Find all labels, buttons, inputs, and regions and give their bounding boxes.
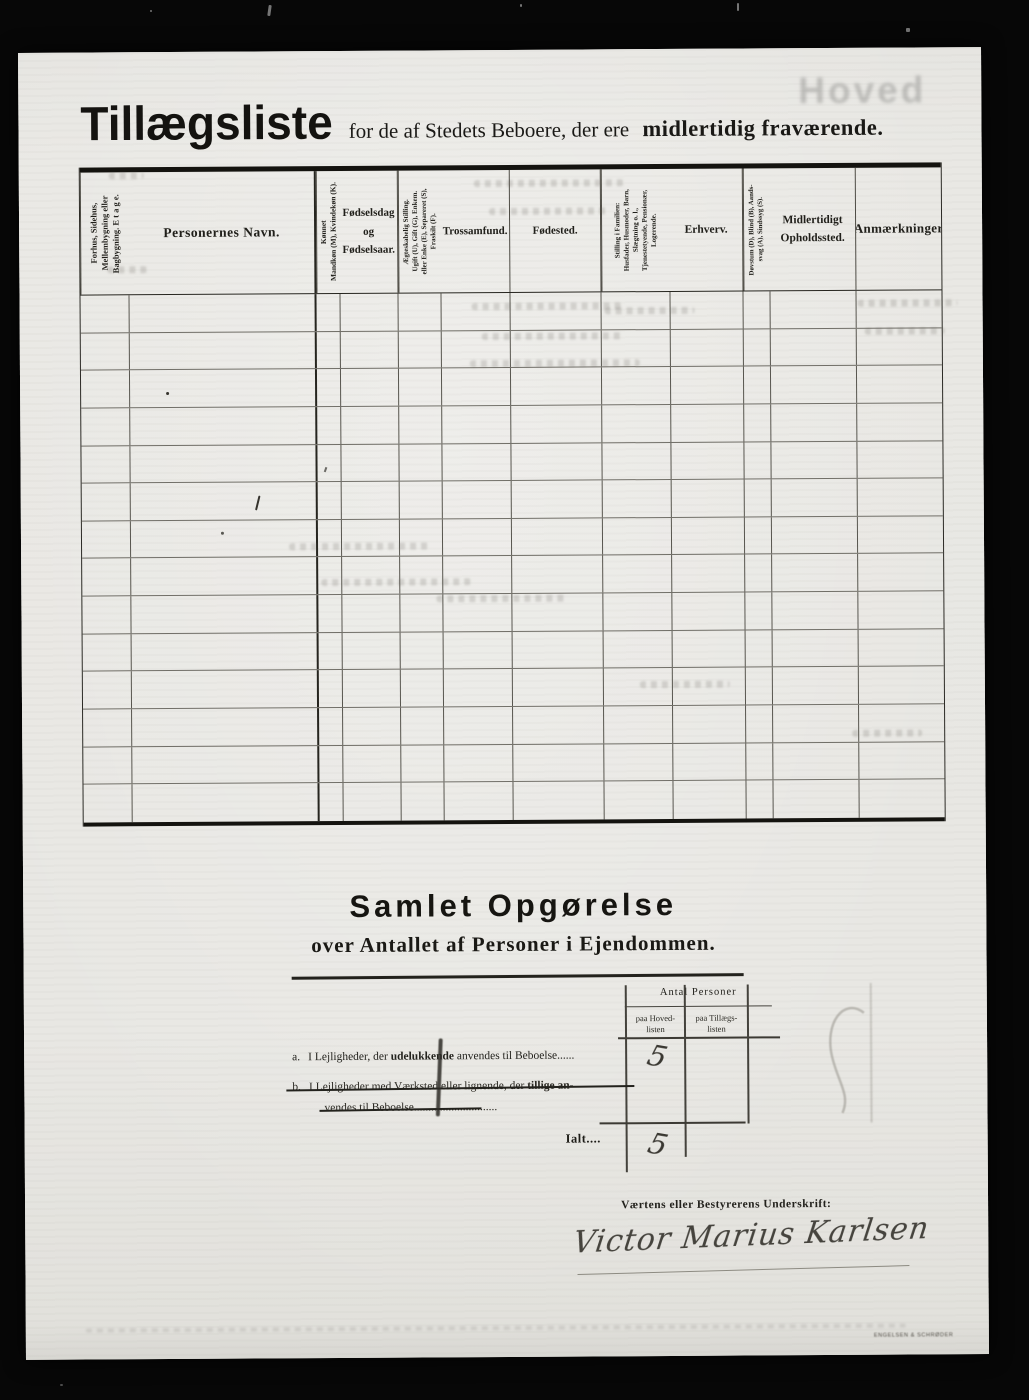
table-cell (442, 331, 511, 368)
table-cell (401, 745, 444, 782)
table-cell (603, 593, 672, 630)
table-cell (399, 369, 442, 406)
table-cell (400, 519, 443, 556)
table-cell (317, 407, 341, 444)
table-cell (746, 668, 773, 705)
table-cell (744, 367, 771, 404)
table-cell (672, 480, 745, 517)
table-cell (773, 629, 859, 666)
table-cell (400, 557, 443, 594)
mini-table-line (600, 1122, 746, 1124)
form-subtitle-regular: for de af Stedets Beboere, der ere (349, 117, 630, 143)
table-cell (858, 591, 943, 628)
table-cell (859, 704, 944, 741)
column-header-temporary-residence: Midlertidigt Opholdssted. (770, 168, 857, 291)
table-cell (81, 295, 130, 332)
table-cell (318, 520, 342, 557)
table-cell (744, 404, 771, 441)
table-cell (343, 708, 401, 745)
table-cell (859, 667, 944, 704)
dust-speck (906, 28, 910, 32)
table-cell (343, 745, 401, 782)
table-cell (130, 407, 317, 445)
line-a-leaders: ...... (557, 1050, 574, 1062)
bleed-through-smudge (86, 1324, 906, 1333)
table-cell (603, 555, 672, 592)
table-row (81, 403, 942, 446)
table-cell (83, 672, 132, 709)
table-cell (673, 781, 746, 819)
table-cell (744, 329, 771, 366)
table-cell (857, 441, 942, 478)
table-cell (444, 744, 513, 781)
table-cell (319, 633, 343, 670)
table-cell (131, 482, 318, 520)
table-cell (771, 366, 857, 403)
table-cell (856, 290, 941, 327)
table-cell (129, 294, 316, 332)
column-header-remarks: Anmærkninger (856, 167, 942, 290)
table-cell (317, 369, 341, 406)
table-row (83, 704, 944, 747)
table-cell (444, 707, 513, 744)
table-cell (604, 631, 673, 668)
handwritten-count-ialt: 5 (644, 1126, 671, 1162)
table-cell (342, 519, 400, 556)
table-cell (773, 780, 859, 818)
column-header-birthdate: Fødselsdag og Fødselsaar. (340, 171, 399, 293)
table-row (82, 478, 943, 521)
table-cell (343, 783, 401, 821)
table-cell (81, 371, 130, 408)
table-cell (746, 630, 773, 667)
table-cell (401, 707, 444, 744)
table-cell (83, 784, 132, 822)
table-row (81, 290, 942, 333)
table-cell (398, 293, 441, 330)
table-cell (399, 444, 442, 481)
table-cell (673, 705, 746, 742)
table-cell (442, 443, 511, 480)
table-row (82, 591, 943, 634)
table-cell (671, 329, 744, 366)
table-cell (857, 403, 942, 440)
dust-speck (150, 10, 152, 12)
table-cell (745, 479, 772, 516)
table-cell (343, 670, 401, 707)
table-cell (82, 483, 131, 520)
table-cell (400, 481, 443, 518)
table-cell (604, 706, 673, 743)
table-cell (341, 369, 399, 406)
table-cell (859, 779, 944, 817)
table-cell (132, 670, 319, 708)
line-a-marker: a. (292, 1051, 300, 1063)
handwritten-count-hovedlisten: 5 (644, 1038, 671, 1074)
table-cell (745, 555, 772, 592)
table-cell (604, 668, 673, 705)
table-cell (513, 744, 604, 781)
mini-col-tillaegslisten: paa Tillægs- listen (686, 1010, 747, 1035)
form-title: Tillægsliste (80, 94, 333, 152)
table-row (83, 629, 944, 672)
table-cell (340, 294, 398, 331)
table-cell (81, 446, 130, 483)
table-cell (82, 521, 131, 558)
table-row (82, 516, 943, 559)
table-cell (772, 479, 858, 516)
table-cell (604, 781, 673, 819)
mini-table-line (618, 1036, 780, 1038)
table-cell (131, 595, 318, 633)
mini-col-hovedlisten: paa Hoved- listen (625, 1010, 686, 1035)
table-cell (603, 518, 672, 555)
table-cell (443, 556, 512, 593)
table-cell (318, 557, 342, 594)
table-cell (858, 478, 943, 515)
table-cell (771, 404, 857, 441)
table-cell (442, 368, 511, 405)
table-cell (341, 407, 399, 444)
table-cell (746, 780, 773, 818)
table-cell (512, 593, 603, 630)
table-cell (672, 593, 745, 630)
table-cell (673, 743, 746, 780)
mini-table-line (625, 1005, 772, 1007)
table-cell (671, 442, 744, 479)
table-cell (773, 667, 859, 704)
column-header-name: Personernes Navn. (129, 171, 317, 294)
signature-underline (578, 1265, 910, 1275)
bleed-through-pen-curve (802, 1003, 883, 1123)
table-cell (401, 632, 444, 669)
table-cell (771, 441, 857, 478)
table-cell (317, 332, 341, 369)
table-cell (513, 782, 604, 820)
dust-speck (520, 4, 522, 7)
summary-rule (292, 973, 744, 979)
table-row (83, 667, 944, 710)
table-cell (319, 670, 343, 707)
signature-handwriting: Victor Marius Karlsen (571, 1211, 915, 1260)
table-cell (601, 292, 670, 329)
line-b-marker: b. (292, 1081, 301, 1093)
table-cell (511, 368, 602, 405)
table-cell (341, 444, 399, 481)
table-cell (858, 554, 943, 591)
table-cell (773, 705, 859, 742)
table-cell (672, 555, 745, 592)
table-cell (513, 706, 604, 743)
table-cell (132, 783, 319, 822)
table-cell (130, 332, 317, 370)
table-cell (772, 517, 858, 554)
table-cell (673, 630, 746, 667)
table-cell (83, 747, 132, 784)
table-cell (513, 669, 604, 706)
table-cell (444, 669, 513, 706)
dust-speck (737, 3, 739, 11)
table-cell (602, 442, 671, 479)
form-subtitle: for de af Stedets Beboere, der ere midle… (349, 115, 884, 144)
table-cell (772, 592, 858, 629)
table-cell (602, 367, 671, 404)
table-row (81, 328, 942, 371)
scan-background: Hoved Tillægsliste for de af Stedets Beb… (0, 0, 1029, 1400)
table-cell (401, 670, 444, 707)
table-cell (857, 366, 942, 403)
table-cell (671, 367, 744, 404)
table-cell (745, 517, 772, 554)
table-cell (858, 516, 943, 553)
table-cell (342, 557, 400, 594)
table-cell (443, 519, 512, 556)
table-cell (603, 480, 672, 517)
table-cell (443, 594, 512, 631)
table-header-row: Forhus, Sidehus, Mellembygning eller Bag… (80, 162, 942, 295)
table-cell (130, 445, 317, 483)
table-cell (319, 783, 343, 821)
table-cell (602, 330, 671, 367)
table-cell (673, 668, 746, 705)
table-cell (672, 517, 745, 554)
census-form-page: Hoved Tillægsliste for de af Stedets Beb… (18, 47, 989, 1360)
table-cell (83, 634, 132, 671)
table-cell (859, 742, 944, 779)
form-title-block: Tillægsliste for de af Stedets Beboere, … (80, 91, 960, 150)
table-row (83, 742, 944, 785)
table-cell (82, 559, 131, 596)
table-cell (443, 481, 512, 518)
column-header-sex: Kønnet Mandkøn (M), Kvindekøn (K). (316, 171, 341, 293)
table-cell (510, 292, 601, 329)
column-header-family-position: Stilling i Familien: Husfader, Husmoder,… (601, 169, 671, 291)
table-cell (131, 558, 318, 596)
table-cell (130, 369, 317, 407)
total-label: Ialt.... (566, 1131, 601, 1146)
table-cell (512, 556, 603, 593)
table-row (81, 441, 942, 484)
signature-label: Værtens eller Bestyrerens Underskrift: (621, 1198, 831, 1211)
table-row (83, 779, 944, 822)
dust-speck (60, 1384, 63, 1386)
printer-imprint: ENGELSEN & SCHRØDER (874, 1332, 954, 1338)
table-cell (670, 292, 743, 329)
column-header-occupation: Erhverv. (670, 169, 744, 291)
table-cell (602, 405, 671, 442)
table-cell (132, 708, 319, 746)
table-cell (746, 705, 773, 742)
column-header-building: Forhus, Sidehus, Mellembygning eller Bag… (80, 172, 130, 294)
column-header-religion: Trossamfund. (441, 170, 511, 292)
mini-table-subheaders: paa Hoved- listen paa Tillægs- listen (625, 1010, 747, 1035)
table-cell (857, 328, 942, 365)
table-row (82, 554, 943, 597)
table-cell (81, 333, 130, 370)
line-a-text: I Lejligheder, der (308, 1051, 391, 1064)
summary-subheading: over Antallet af Personer i Ejendommen. (263, 930, 763, 958)
column-header-birthplace: Fødested. (510, 169, 602, 292)
column-header-marital-status: Ægteskabelig Stilling. Ugift (U), Gift (… (398, 170, 442, 292)
table-row (81, 366, 942, 409)
table-cell (772, 554, 858, 591)
table-cell (743, 291, 770, 328)
table-cell (319, 708, 343, 745)
table-cell (511, 405, 602, 442)
table-cell (131, 520, 318, 558)
table-cell (746, 743, 773, 780)
mini-table-header: Antal Personer (625, 986, 772, 998)
table-cell (444, 782, 513, 820)
table-cell (132, 746, 319, 784)
table-cell (81, 408, 130, 445)
table-cell (317, 444, 341, 481)
table-cell (773, 742, 859, 779)
table-cell (511, 443, 602, 480)
table-cell (671, 404, 744, 441)
table-cell (401, 782, 444, 820)
table-cell (511, 330, 602, 367)
line-a-bold: udelukkende (391, 1050, 454, 1062)
table-cell (343, 632, 401, 669)
summary-line-a: a.I Lejligheder, der udelukkende anvende… (292, 1050, 574, 1064)
summary-heading: Samlet Opgørelse (263, 886, 763, 925)
table-cell (441, 293, 510, 330)
table-cell (319, 745, 343, 782)
table-cell (82, 596, 131, 633)
table-body (81, 290, 945, 826)
table-cell (770, 291, 856, 328)
table-cell (859, 629, 944, 666)
table-cell (745, 592, 772, 629)
form-subtitle-emphasis: midlertidig fraværende. (642, 115, 883, 141)
table-cell (512, 481, 603, 518)
table-cell (744, 442, 771, 479)
table-cell (604, 743, 673, 780)
line-a-text: anvendes til Beboelse (454, 1050, 557, 1063)
census-table: Forhus, Sidehus, Mellembygning eller Bag… (79, 162, 946, 826)
table-cell (342, 482, 400, 519)
table-cell (318, 482, 342, 519)
table-cell (341, 331, 399, 368)
column-header-disabilities: Døvstum (D), Blind (B), Aands- svag (A),… (743, 168, 771, 290)
table-cell (316, 294, 340, 331)
table-cell (444, 632, 513, 669)
table-cell (400, 594, 443, 631)
table-cell (771, 328, 857, 365)
table-cell (512, 518, 603, 555)
table-cell (342, 595, 400, 632)
table-cell (399, 406, 442, 443)
dust-speck (267, 5, 272, 16)
table-cell (513, 631, 604, 668)
table-cell (399, 331, 442, 368)
table-cell (318, 595, 342, 632)
table-cell (132, 633, 319, 671)
table-cell (83, 709, 132, 746)
table-cell (442, 406, 511, 443)
